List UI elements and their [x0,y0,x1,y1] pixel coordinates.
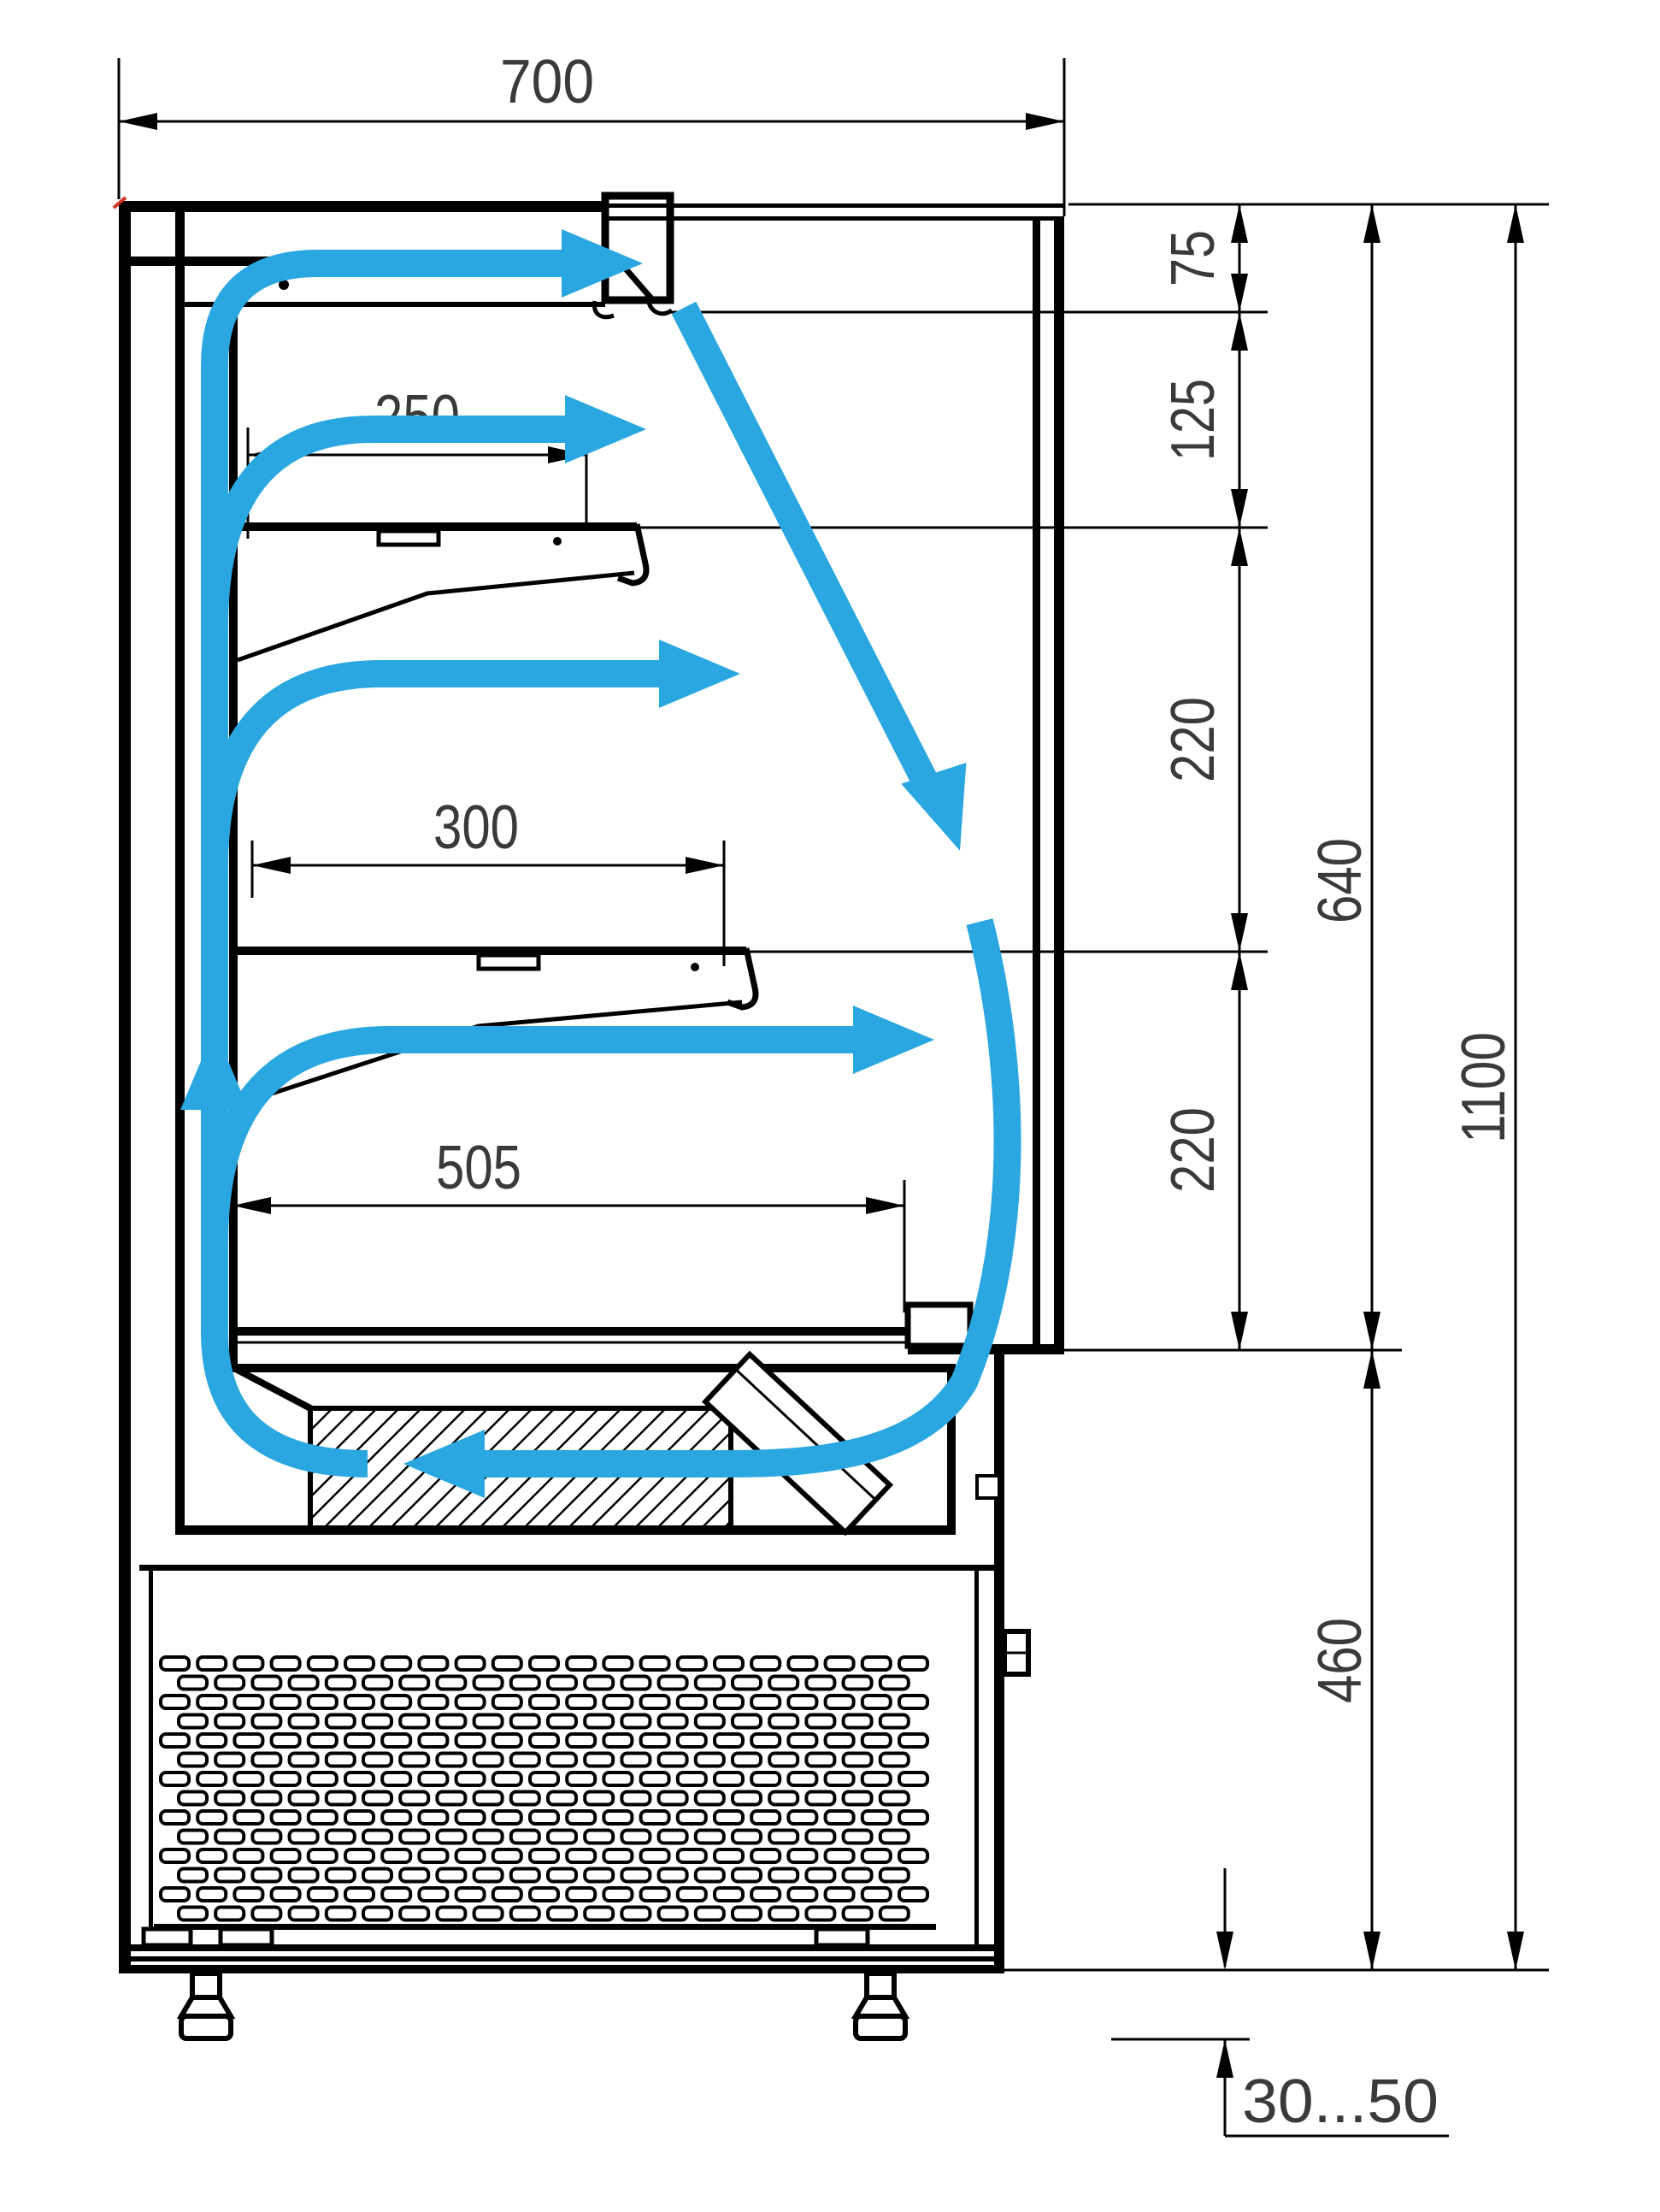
dim-outlet-to-top-shelf-label: 125 [1159,379,1227,461]
airflow-arrowheads [180,229,972,1498]
dim-display-opening-height-label: 640 [1306,838,1375,923]
bottom-rail-2 [122,1956,1004,1961]
base-front-inner-line [974,1570,979,1950]
top-shelf-price-clip [379,531,439,545]
adjustable-foot-right [856,1973,905,2038]
well-deck [233,1327,908,1336]
adjustable-foot-left [181,1973,231,2038]
plenum-ceiling [236,1364,956,1372]
dim-overall-height-label: 1100 [1450,1032,1518,1143]
middle-shelf-price-clip [479,955,539,969]
dim-middle-shelf-depth-label: 300 [433,793,519,862]
back-wall [119,201,131,1973]
front-top-rail-outer [609,204,1064,208]
airflow-air-curtain [684,308,927,786]
foot-mount-block-2 [221,1929,272,1945]
grille-left-frame [149,1570,153,1932]
canopy-top-panel [119,201,609,212]
technical-drawing: 700 250 300 505 75 125 220 220 640 1100 … [0,0,1660,2212]
dim-air-outlet-height-label: 75 [1159,230,1227,286]
well-front-block [908,1305,970,1346]
arrowhead-middle-shelf [659,640,740,708]
dim-top-to-middle-shelf-label: 220 [1159,697,1227,782]
arrowhead-top-shelf [565,395,646,463]
shelf-rack-upright [229,301,238,1372]
dim-overall-width-label: 700 [500,48,594,116]
top-shelf-screw [553,537,562,546]
middle-shelf-screw [691,963,699,971]
top-shelf-bracket [238,573,634,660]
arrowhead-riser-up [180,1029,249,1110]
vent-grille [161,1657,927,1920]
front-access-square [977,1476,999,1498]
dim-base-height-label: 460 [1306,1618,1375,1703]
foot-mount-block-1 [144,1929,191,1945]
base-top-edge [139,1565,1004,1571]
duct-ceiling-panel [185,302,605,307]
middle-shelf-front-lip [727,948,756,1007]
arrowhead-well [853,1006,934,1074]
dim-well-depth-label: 505 [436,1134,521,1202]
dim-foot-clearance-label: 30...50 [1242,2067,1439,2136]
front-glass-inner-pane [1033,219,1040,1346]
front-top-rail-inner [609,216,1064,221]
airflow-arrows [180,229,1008,1498]
dim-middle-shelf-to-well-label: 220 [1159,1107,1227,1193]
rear-duct-wall [175,211,185,1531]
foot-mount-block-3 [816,1929,868,1945]
front-glass-outer-pane [1054,219,1064,1346]
airflow-branch-well [215,1040,862,1244]
